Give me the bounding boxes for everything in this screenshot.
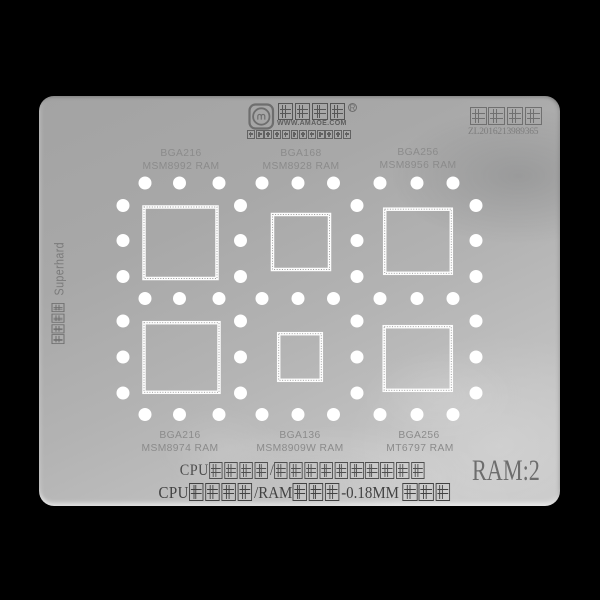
svg-text:R: R xyxy=(350,104,356,113)
